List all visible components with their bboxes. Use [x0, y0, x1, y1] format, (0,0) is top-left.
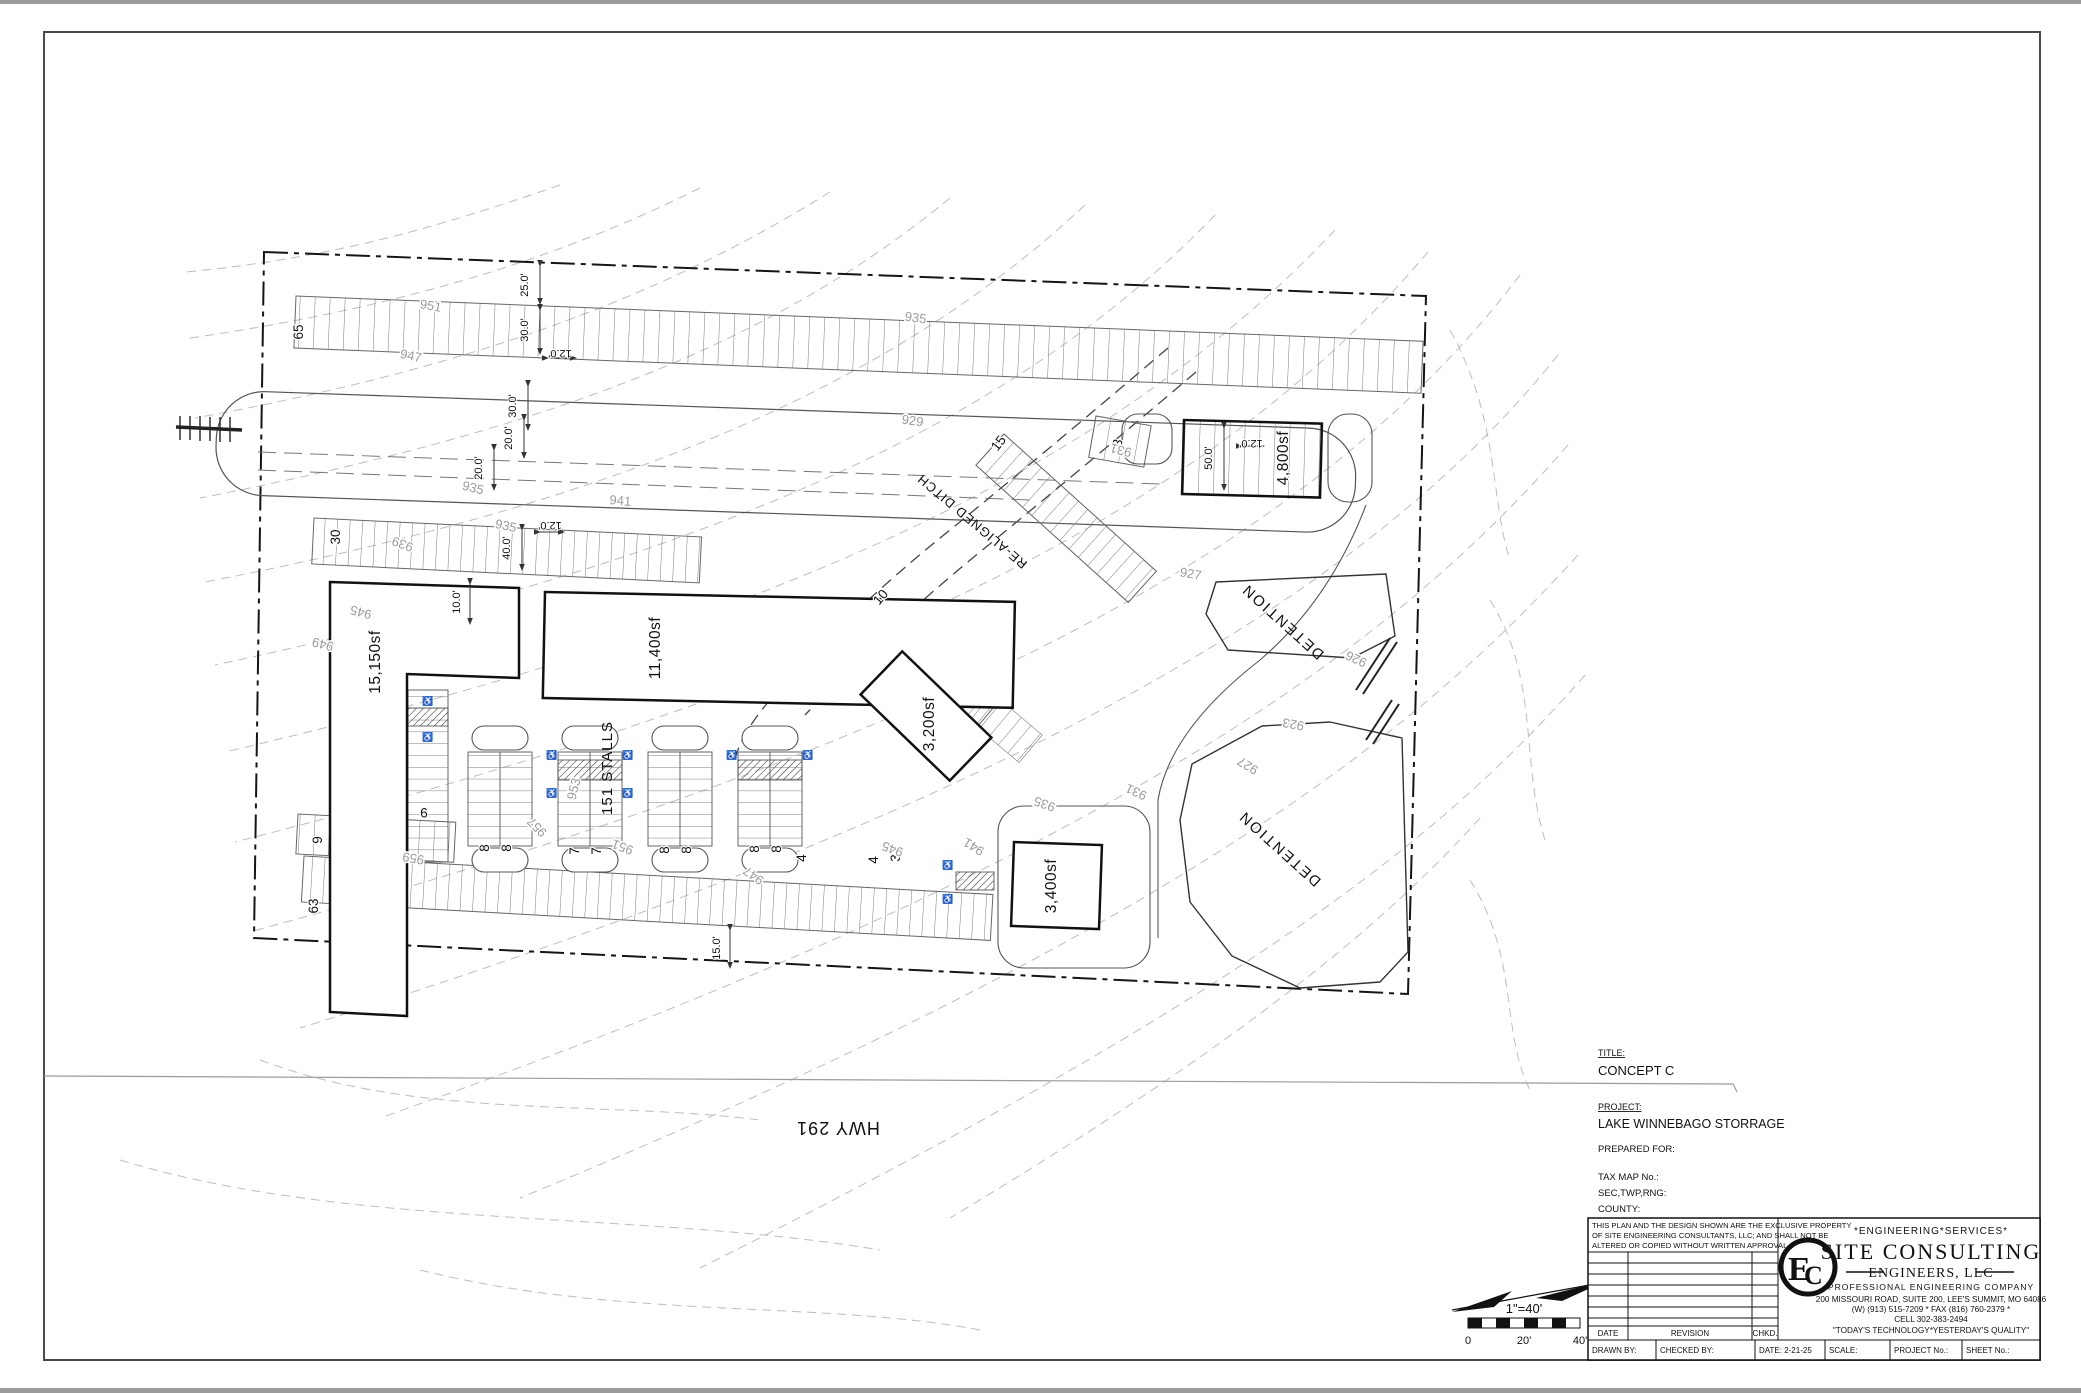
- stall-count: 8: [769, 845, 784, 853]
- building-label: 15,150sf: [367, 630, 384, 694]
- contour-label: 927: [1179, 564, 1203, 583]
- disclaimer-line: ALTERED OR COPIED WITHOUT WRITTEN APPROV…: [1592, 1241, 1789, 1250]
- contour-line: [700, 675, 1585, 1268]
- parking-row-top: [294, 296, 1423, 393]
- building-label: 3,400sf: [1043, 859, 1060, 914]
- scale-bar-segment: [1468, 1318, 1482, 1328]
- company-motto: "TODAY'S TECHNOLOGY*YESTERDAY'S QUALITY": [1833, 1326, 2029, 1335]
- dimension-label: 25.0': [519, 273, 531, 297]
- stall-count: 30: [328, 529, 343, 544]
- sheet-no-field: SHEET No.:: [1966, 1346, 2009, 1355]
- company-address: 200 MISSOURI ROAD, SUITE 200, LEE'S SUMM…: [1816, 1295, 2047, 1304]
- parking-island: [742, 726, 798, 750]
- scale-ratio: 1"=40': [1506, 1301, 1542, 1316]
- dimension-label: 20.0': [473, 456, 485, 480]
- ada-symbol: ♿: [942, 893, 953, 904]
- stall-count: 65: [291, 324, 306, 339]
- dimension-label: 50.0': [1203, 446, 1215, 470]
- contour-label: 923: [1281, 715, 1305, 734]
- ada-stall-hatch: [738, 760, 802, 780]
- revision-header-date: DATE: [1598, 1329, 1619, 1338]
- stall-count: 9: [310, 836, 325, 844]
- title-label: TITLE:: [1598, 1048, 1625, 1058]
- stall-count: 9: [420, 805, 428, 820]
- culvert-symbol-west: [176, 416, 242, 442]
- ada-symbol: ♿: [942, 859, 953, 870]
- contour-label: 941: [960, 835, 986, 859]
- scale-tick-label: 20': [1517, 1335, 1531, 1347]
- logo-letter-c: C: [1804, 1261, 1823, 1290]
- parking-island: [1328, 414, 1372, 502]
- ada-symbol: ♿: [546, 787, 557, 798]
- company-type: PROFESSIONAL ENGINEERING COMPANY: [1828, 1282, 2034, 1292]
- checked-by-label: CHECKED BY:: [1660, 1346, 1714, 1355]
- dimension-label: 12.0': [1239, 437, 1263, 449]
- prepared-for-label: PREPARED FOR:: [1598, 1144, 1675, 1155]
- stall-count: 8: [747, 845, 762, 853]
- company-phone: (W) (913) 515-7209 * FAX (816) 760-2379 …: [1852, 1305, 2011, 1314]
- highway-label: HWY 291: [796, 1118, 880, 1138]
- stall-count: 8: [679, 846, 694, 854]
- disclaimer-line: THIS PLAN AND THE DESIGN SHOWN ARE THE E…: [1592, 1221, 1852, 1230]
- sec-twp-rng-label: SEC,TWP,RNG:: [1598, 1188, 1666, 1199]
- contour-line: [1450, 330, 1510, 560]
- ada-stall-hatch: [408, 708, 448, 726]
- dimension-label: 12.0': [548, 347, 572, 359]
- contour-label: 941: [609, 492, 632, 509]
- stall-count: 63: [306, 898, 321, 913]
- ada-symbol: ♿: [546, 749, 557, 760]
- contour-label: 935: [904, 309, 928, 327]
- highway-line: [44, 1076, 1737, 1092]
- parking-island: [472, 726, 528, 750]
- dimension-label: 10.0': [451, 590, 463, 614]
- scale-field: SCALE:: [1829, 1346, 1857, 1355]
- contour-label: 935: [1032, 793, 1058, 815]
- ada-symbol: ♿: [802, 749, 813, 760]
- ada-symbol: ♿: [422, 695, 433, 706]
- building-label: 11,400sf: [647, 617, 664, 680]
- detention-lower-label: DETENTION: [1235, 807, 1324, 890]
- drawn-by-label: DRAWN BY:: [1592, 1346, 1637, 1355]
- building-label: 3,200sf: [921, 697, 938, 752]
- contour-line: [1490, 600, 1545, 840]
- contour-line: [260, 1060, 760, 1120]
- sheet-title: CONCEPT C: [1598, 1063, 1674, 1078]
- sheet: HWY 291 RE-ALIGNED DITCH DETENTION DETEN…: [0, 0, 2081, 1393]
- contour-label: 931: [1123, 781, 1149, 804]
- project-no-field: PROJECT No.:: [1894, 1346, 1948, 1355]
- scale-tick-label: 40': [1573, 1335, 1587, 1347]
- scale-bar-segment: [1496, 1318, 1510, 1328]
- dimension-label: 20.0': [503, 426, 515, 450]
- culvert-symbol-east-2: [1366, 700, 1399, 744]
- stall-count: 8: [477, 844, 492, 852]
- dimension-label: 40.0': [501, 536, 513, 560]
- ada-symbol: ♿: [726, 749, 737, 760]
- contour-line: [1470, 880, 1530, 1090]
- stall-count: 7: [589, 847, 604, 855]
- contour-line: [186, 185, 560, 272]
- ada-stall-hatch: [956, 872, 994, 890]
- contour-line: [120, 1160, 880, 1250]
- dimension-label: 30.0': [507, 394, 519, 418]
- dimension-label: 30.0': [519, 318, 531, 342]
- stall-count: 8: [499, 844, 514, 852]
- stall-count: 8: [657, 846, 672, 854]
- dimension-label: 15.0': [711, 936, 723, 960]
- contour-label: 929: [901, 412, 925, 430]
- company-tagline: *ENGINEERING*SERVICES*: [1854, 1226, 2008, 1237]
- county-label: COUNTY:: [1598, 1204, 1640, 1215]
- revision-header-chkd: CHKD.: [1753, 1329, 1778, 1338]
- company-cell: CELL 302-383-2494: [1894, 1315, 1968, 1324]
- parking-row-rect: [294, 296, 1423, 393]
- culvert-line: [176, 427, 242, 430]
- stall-count: 4: [866, 856, 881, 864]
- stall-count: 7: [567, 847, 582, 855]
- building-label: 4,800sf: [1275, 431, 1292, 486]
- dimension-label: 12.0': [538, 519, 562, 531]
- scale-bar-segment: [1524, 1318, 1538, 1328]
- revision-header-revision: REVISION: [1671, 1329, 1709, 1338]
- total-stalls-label: 151 STALLS: [599, 721, 616, 815]
- ada-symbol: ♿: [622, 749, 633, 760]
- contour-label: 945: [880, 838, 906, 860]
- disclaimer-line: OF SITE ENGINEERING CONSULTANTS, LLC; AN…: [1592, 1231, 1828, 1240]
- stall-count: 4: [794, 854, 809, 862]
- contour-label: 927: [1234, 754, 1260, 778]
- title-block: TITLE: CONCEPT C PROJECT: LAKE WINNEBAGO…: [1588, 1048, 2047, 1360]
- contour-label: 947: [399, 346, 423, 365]
- ada-symbol: ♿: [422, 731, 433, 742]
- scale-bar-segment: [1552, 1318, 1566, 1328]
- project-label: PROJECT:: [1598, 1102, 1642, 1112]
- ditch-centerline: [258, 470, 1030, 500]
- company-subname: ENGINEERS, LLC: [1868, 1266, 1993, 1281]
- parking-island: [652, 726, 708, 750]
- tax-map-label: TAX MAP No.:: [1598, 1172, 1659, 1183]
- project-name: LAKE WINNEBAGO STORRAGE: [1598, 1117, 1785, 1131]
- site-plan-drawing: HWY 291 RE-ALIGNED DITCH DETENTION DETEN…: [0, 0, 2081, 1393]
- parking-column-west: ♿ ♿: [408, 690, 448, 862]
- date-field: DATE: 2-21-25: [1759, 1346, 1812, 1355]
- scale-tick-label: 0: [1465, 1335, 1471, 1347]
- ada-symbol: ♿: [622, 787, 633, 798]
- company-name: SITE CONSULTING: [1821, 1239, 2041, 1264]
- contour-line: [420, 1270, 980, 1330]
